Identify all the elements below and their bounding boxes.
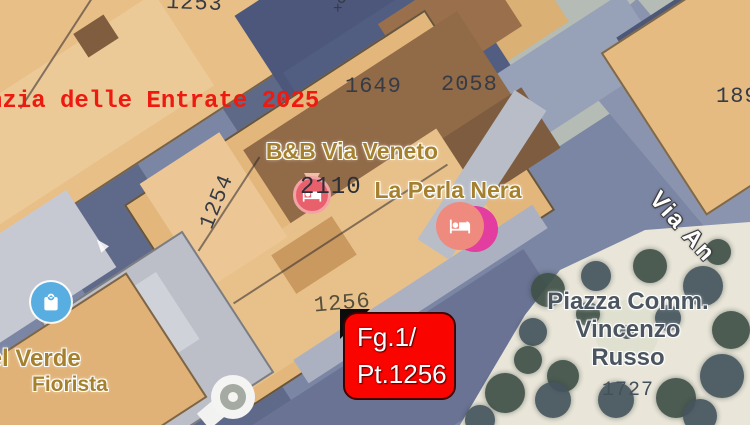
shopping-bag-icon — [41, 292, 61, 312]
tree — [700, 354, 744, 398]
hotel-pin[interactable] — [436, 202, 484, 250]
parcel-number-2058: 2058 — [441, 74, 498, 96]
tree — [535, 382, 571, 418]
parcel-number-1727: 1727 — [602, 381, 654, 401]
stamp-line2: Pt.1256 — [357, 356, 454, 393]
tree — [633, 249, 667, 283]
poi-label-bnb-via-veneto[interactable]: B&B Via Veneto — [266, 138, 438, 165]
poi-label-florist-line1[interactable]: del Verde — [0, 345, 81, 373]
plaza-label-line3[interactable]: Russo — [591, 344, 664, 372]
tree — [485, 373, 525, 413]
parcel-stamp-box: Fg.1/ Pt.1256 — [343, 312, 456, 400]
parcel-number-1253: 1253 — [166, 0, 224, 16]
tree — [712, 311, 750, 349]
stamp-line1: Fg.1/ — [357, 319, 454, 356]
map-canvas[interactable]: 1253 1254 2110 1649 2058 1256 1727 189 6… — [0, 0, 750, 425]
poi-label-florist-line2[interactable]: Fiorista — [32, 373, 108, 397]
plaza-label-line2[interactable]: Vincenzo — [576, 316, 681, 344]
poi-label-la-perla-nera[interactable]: La Perla Nera — [374, 177, 521, 204]
parcel-cross-mark: + — [333, 1, 344, 17]
plaza-label-line1[interactable]: Piazza Comm. — [547, 288, 708, 316]
parcel-number-1649: 1649 — [345, 76, 402, 98]
tree — [581, 261, 611, 291]
tree — [683, 399, 717, 425]
bed-icon — [449, 215, 471, 237]
tree — [519, 318, 547, 346]
agenzia-entrate-watermark: nzia delle Entrate 2025 — [0, 88, 319, 115]
tree — [514, 346, 542, 374]
parcel-number-2110: 2110 — [300, 176, 362, 200]
parcel-number-189: 189 — [716, 86, 750, 108]
florist-shop-pin[interactable] — [31, 282, 71, 322]
